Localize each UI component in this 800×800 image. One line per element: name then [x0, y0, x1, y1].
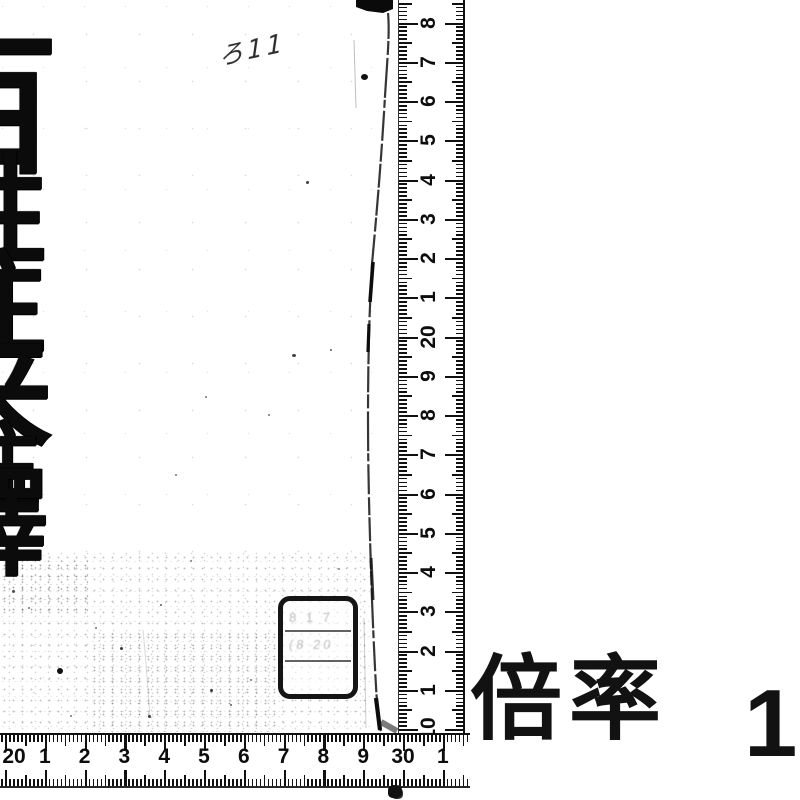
ruler-tick	[112, 779, 114, 786]
ink-speck	[175, 474, 177, 476]
ruler-tick	[399, 580, 407, 582]
ruler-tick	[456, 34, 464, 36]
ruler-tick	[456, 466, 464, 468]
ruler-tick	[456, 509, 464, 511]
ink-speck	[148, 715, 151, 718]
stamp-faint-text: 8 1 7	[289, 610, 349, 625]
ruler-tick	[456, 89, 464, 91]
ruler-tick	[399, 270, 407, 272]
ruler-tick	[399, 215, 407, 217]
ruler-tick	[311, 735, 313, 742]
ruler-tick	[456, 227, 464, 229]
ruler-tick	[399, 172, 407, 174]
ruler-tick	[144, 775, 146, 786]
ruler-tick	[399, 305, 407, 307]
ruler-tick	[456, 705, 464, 707]
ruler-tick	[399, 176, 407, 178]
ruler-tick	[172, 735, 174, 742]
ruler-tick	[456, 38, 464, 40]
ruler-tick	[452, 592, 465, 594]
ruler-tick	[399, 478, 407, 480]
ruler-tick	[456, 234, 464, 236]
ruler-tick	[41, 779, 43, 786]
ruler-number: 2	[417, 252, 441, 264]
title-character: 釋	[0, 466, 48, 582]
ruler-tick	[456, 721, 464, 723]
ruler-tick	[399, 599, 407, 601]
ruler-tick	[399, 278, 412, 280]
ruler-tick	[456, 635, 464, 637]
ruler-tick	[445, 533, 464, 535]
ruler-tick	[445, 415, 464, 417]
ruler-tick	[445, 690, 464, 692]
ruler-tick	[367, 735, 369, 742]
ruler-tick	[399, 231, 407, 233]
ruler-tick	[399, 611, 418, 613]
ruler-tick	[399, 678, 407, 680]
ruler-tick	[456, 187, 464, 189]
ruler-tick	[407, 779, 409, 786]
ink-speck	[95, 627, 97, 629]
ruler-tick	[319, 779, 321, 786]
ruler-tick	[399, 301, 407, 303]
ruler-tick	[399, 348, 407, 350]
ruler-tick	[89, 735, 91, 742]
ruler-tick	[192, 779, 194, 786]
ruler-tick	[399, 560, 407, 562]
ruler-tick	[456, 458, 464, 460]
ruler-tick	[69, 735, 71, 742]
ruler-tick	[399, 533, 418, 535]
ruler-tick	[452, 513, 465, 515]
scan-canvas: 百姓往来注釋 ろ11 8 1 7 (8 20 87654321209876543…	[0, 0, 800, 800]
ruler-tick	[33, 735, 35, 742]
ruler-number: 3	[417, 605, 441, 617]
ruler-tick	[399, 395, 412, 397]
ruler-tick	[184, 775, 186, 786]
ruler-tick	[224, 775, 226, 786]
ruler-tick	[456, 717, 464, 719]
ruler-tick	[399, 709, 412, 711]
ruler-tick	[395, 735, 397, 742]
ruler-tick	[108, 779, 110, 786]
ruler-tick	[456, 643, 464, 645]
ruler-tick	[455, 779, 457, 786]
ruler-tick	[456, 254, 464, 256]
ruler-tick	[351, 779, 353, 786]
ruler-tick	[399, 274, 407, 276]
ruler-tick	[415, 735, 417, 742]
ruler-tick	[9, 735, 11, 742]
ruler-tick	[456, 282, 464, 284]
ruler-tick	[387, 779, 389, 786]
ruler-tick	[447, 735, 449, 742]
ruler-tick	[65, 735, 67, 746]
ruler-tick	[456, 172, 464, 174]
ruler-tick	[452, 278, 465, 280]
ruler-tick	[399, 109, 407, 111]
ruler-tick	[188, 779, 190, 786]
ruler-tick	[399, 321, 407, 323]
magnification-value: 1	[744, 676, 797, 772]
ruler-tick	[399, 470, 407, 472]
ruler-tick	[128, 735, 130, 742]
ruler-tick	[445, 62, 464, 64]
ruler-tick	[456, 203, 464, 205]
ruler-tick	[456, 164, 464, 166]
ruler-tick	[456, 195, 464, 197]
ruler-tick	[168, 735, 170, 742]
ruler-tick	[288, 779, 290, 786]
ruler-tick	[451, 735, 453, 742]
ruler-tick	[456, 30, 464, 32]
ruler-tick	[431, 735, 433, 742]
magnification-label: 倍率	[470, 648, 668, 754]
ruler-tick	[264, 735, 266, 746]
ruler-tick	[456, 113, 464, 115]
ruler-tick	[456, 497, 464, 499]
ruler-tick	[399, 81, 412, 83]
ruler-tick	[399, 513, 412, 515]
ruler-tick	[256, 779, 258, 786]
ruler-tick	[399, 285, 407, 287]
ruler-tick	[399, 454, 418, 456]
ruler-tick	[399, 529, 407, 531]
ruler-tick	[276, 779, 278, 786]
ruler-number: 5	[417, 527, 441, 539]
ruler-tick	[399, 337, 418, 339]
ruler-tick	[399, 423, 407, 425]
ruler-tick	[1, 735, 3, 742]
ruler-tick	[116, 735, 118, 742]
ruler-tick	[29, 735, 31, 742]
ruler-tick	[25, 775, 27, 786]
ruler-tick	[399, 187, 407, 189]
ruler-tick	[435, 735, 437, 742]
ruler-tick	[399, 26, 407, 28]
ruler-tick	[112, 735, 114, 742]
ruler-number: 4	[417, 566, 441, 578]
ruler-tick	[456, 70, 464, 72]
ruler-number: 4	[158, 745, 170, 769]
ruler-tick	[456, 584, 464, 586]
ruler-number: 6	[238, 745, 250, 769]
ruler-tick	[456, 329, 464, 331]
ruler-tick	[399, 97, 407, 99]
ruler-tick	[456, 568, 464, 570]
ruler-tick	[445, 337, 464, 339]
ruler-tick	[399, 639, 407, 641]
ruler-tick	[399, 356, 412, 358]
ruler-tick	[456, 144, 464, 146]
ruler-tick	[399, 501, 407, 503]
ruler-tick	[399, 160, 412, 162]
ruler-tick	[456, 548, 464, 550]
ruler-tick	[17, 779, 19, 786]
ink-speck	[190, 560, 192, 562]
ruler-tick	[399, 372, 407, 374]
ruler-tick	[399, 46, 407, 48]
ruler-tick	[399, 180, 418, 182]
ruler-tick	[403, 770, 405, 786]
ruler-tick	[304, 775, 306, 786]
ruler-tick	[232, 779, 234, 786]
ink-speck	[205, 396, 207, 398]
ruler-tick	[456, 654, 464, 656]
ruler-tick	[456, 615, 464, 617]
ruler-tick	[456, 505, 464, 507]
ruler-tick	[224, 735, 226, 746]
ruler-tick	[456, 529, 464, 531]
ruler-tick	[456, 427, 464, 429]
ruler-tick	[399, 521, 407, 523]
ruler-tick	[264, 775, 266, 786]
ruler-tick	[9, 779, 11, 786]
ruler-tick	[77, 779, 79, 786]
ruler-tick	[399, 74, 407, 76]
ruler-tick	[29, 779, 31, 786]
ruler-tick	[25, 735, 27, 746]
ruler-tick	[456, 344, 464, 346]
ruler-tick	[156, 735, 158, 742]
ruler-tick	[456, 450, 464, 452]
ruler-tick	[456, 97, 464, 99]
ruler-tick	[456, 309, 464, 311]
ruler-tick	[300, 779, 302, 786]
ruler-tick	[399, 384, 407, 386]
ruler-tick	[136, 779, 138, 786]
ruler-tick	[232, 735, 234, 742]
ruler-tick	[456, 250, 464, 252]
ruler-tick	[456, 176, 464, 178]
ruler-tick	[452, 709, 465, 711]
ink-speck	[250, 679, 252, 681]
ruler-tick	[399, 132, 407, 134]
ruler-tick	[399, 407, 407, 409]
ruler-tick	[456, 462, 464, 464]
ruler-number: 6	[417, 488, 441, 500]
ruler-tick	[456, 588, 464, 590]
ruler-tick	[73, 735, 75, 742]
page-speckle-cluster	[90, 632, 280, 732]
ruler-tick	[399, 419, 407, 421]
ruler-tick	[45, 770, 47, 786]
ruler-tick	[456, 191, 464, 193]
ruler-tick	[248, 779, 250, 786]
ruler-tick	[367, 779, 369, 786]
ruler-tick	[427, 735, 429, 742]
ruler-tick	[399, 694, 407, 696]
ruler-tick	[456, 639, 464, 641]
ruler-tick	[399, 254, 407, 256]
ruler-tick	[399, 227, 407, 229]
ruler-tick	[456, 66, 464, 68]
ruler-tick	[399, 497, 407, 499]
ruler-tick	[335, 779, 337, 786]
ruler-tick	[359, 735, 361, 742]
ruler-tick	[456, 599, 464, 601]
ruler-tick	[292, 735, 294, 742]
ruler-tick	[456, 698, 464, 700]
ruler-tick	[452, 121, 465, 123]
ruler-tick	[399, 360, 407, 362]
ruler-tick	[399, 11, 407, 13]
ruler-tick	[228, 735, 230, 742]
ruler-tick	[456, 132, 464, 134]
ruler-tick	[456, 105, 464, 107]
ruler-tick	[445, 651, 464, 653]
ruler-tick	[347, 735, 349, 742]
ruler-tick	[456, 117, 464, 119]
ruler-tick	[456, 399, 464, 401]
ruler-tick	[399, 509, 407, 511]
ruler-tick	[456, 470, 464, 472]
ruler-tick	[101, 735, 103, 742]
ruler-tick	[176, 735, 178, 742]
ruler-tick	[37, 779, 39, 786]
ruler-tick	[180, 735, 182, 742]
ruler-tick	[120, 779, 122, 786]
ruler-tick	[419, 779, 421, 786]
ruler-tick	[140, 779, 142, 786]
ruler-tick	[343, 775, 345, 786]
ruler-tick	[399, 42, 412, 44]
ruler-tick	[307, 779, 309, 786]
ruler-tick	[292, 779, 294, 786]
ruler-tick	[456, 207, 464, 209]
ruler-tick	[200, 735, 202, 742]
ruler-tick	[456, 647, 464, 649]
ruler-tick	[399, 148, 407, 150]
ruler-tick	[399, 415, 418, 417]
ruler-tick	[456, 580, 464, 582]
ruler-tick	[456, 156, 464, 158]
ruler-tick	[220, 779, 222, 786]
ruler-tick	[399, 450, 407, 452]
ruler-tick	[399, 113, 407, 115]
ruler-tick	[399, 643, 407, 645]
ruler-tick	[399, 313, 407, 315]
ruler-tick	[452, 238, 465, 240]
ink-speck	[120, 647, 123, 650]
ruler-tick	[160, 735, 162, 742]
ruler-tick	[456, 517, 464, 519]
ruler-tick	[456, 713, 464, 715]
ruler-tick	[152, 779, 154, 786]
ruler-tick	[300, 735, 302, 742]
ruler-tick	[196, 735, 198, 742]
ruler-tick	[456, 423, 464, 425]
ruler-tick	[204, 770, 206, 786]
ruler-tick	[89, 779, 91, 786]
ruler-tick	[456, 486, 464, 488]
ruler-number: 3	[119, 745, 131, 769]
ruler-tick	[399, 144, 407, 146]
ruler-tick	[399, 223, 407, 225]
ruler-tick	[445, 376, 464, 378]
ruler-tick	[399, 266, 407, 268]
stamp-faint-text: (8 20	[288, 637, 350, 652]
ruler-tick	[399, 702, 407, 704]
ruler-tick	[456, 215, 464, 217]
ruler-tick	[456, 325, 464, 327]
ruler-tick	[456, 19, 464, 21]
ruler-tick	[445, 454, 464, 456]
ruler-tick	[5, 770, 7, 786]
ruler-tick	[456, 682, 464, 684]
ruler-tick	[452, 317, 465, 319]
ruler-tick	[456, 662, 464, 664]
ruler-tick	[411, 779, 413, 786]
ruler-tick	[296, 779, 298, 786]
ruler-tick	[399, 340, 407, 342]
ruler-tick	[148, 735, 150, 742]
ruler-tick	[399, 376, 418, 378]
ruler-tick	[220, 735, 222, 742]
ruler-tick	[168, 779, 170, 786]
ruler-tick	[456, 348, 464, 350]
ruler-tick	[371, 779, 373, 786]
ruler-tick	[456, 576, 464, 578]
ruler-tick	[399, 250, 407, 252]
ruler-tick	[423, 775, 425, 786]
ruler-tick	[399, 207, 407, 209]
ruler-tick	[452, 356, 465, 358]
ruler-number: 8	[417, 409, 441, 421]
ruler-tick	[456, 419, 464, 421]
ruler-tick	[399, 603, 407, 605]
ruler-tick	[452, 81, 465, 83]
ruler-tick	[456, 439, 464, 441]
ruler-tick	[399, 682, 407, 684]
ruler-tick	[296, 735, 298, 742]
ruler-tick	[399, 7, 407, 9]
ruler-tick	[216, 735, 218, 742]
ruler-tick	[176, 779, 178, 786]
ink-speck	[338, 568, 340, 570]
ruler-tick	[456, 136, 464, 138]
ruler-tick	[399, 164, 407, 166]
ruler-tick	[399, 23, 418, 25]
ruler-tick	[212, 779, 214, 786]
ruler-tick	[188, 735, 190, 742]
ruler-tick	[452, 670, 465, 672]
ruler-tick	[456, 403, 464, 405]
ink-speck	[160, 604, 162, 606]
ruler-tick	[399, 435, 412, 437]
ruler-tick	[445, 297, 464, 299]
ruler-tick	[452, 160, 465, 162]
ruler-number: 1	[39, 745, 51, 769]
ruler-tick	[456, 388, 464, 390]
ruler-tick	[363, 770, 365, 786]
horizontal-ruler: 20123456789301	[0, 733, 470, 790]
ruler-tick	[399, 325, 407, 327]
ruler-tick	[419, 735, 421, 742]
ruler-tick	[399, 545, 407, 547]
ruler-tick	[61, 779, 63, 786]
ruler-number: 6	[417, 95, 441, 107]
ruler-tick	[93, 735, 95, 742]
book-page: 百姓往来注釋 ろ11 8 1 7 (8 20	[0, 0, 393, 737]
ruler-tick	[375, 779, 377, 786]
ruler-tick	[456, 266, 464, 268]
ruler-number: 9	[417, 370, 441, 382]
ruler-tick	[311, 779, 313, 786]
ruler-number: 3	[417, 213, 441, 225]
ruler-tick	[57, 779, 59, 786]
ruler-tick	[53, 735, 55, 742]
